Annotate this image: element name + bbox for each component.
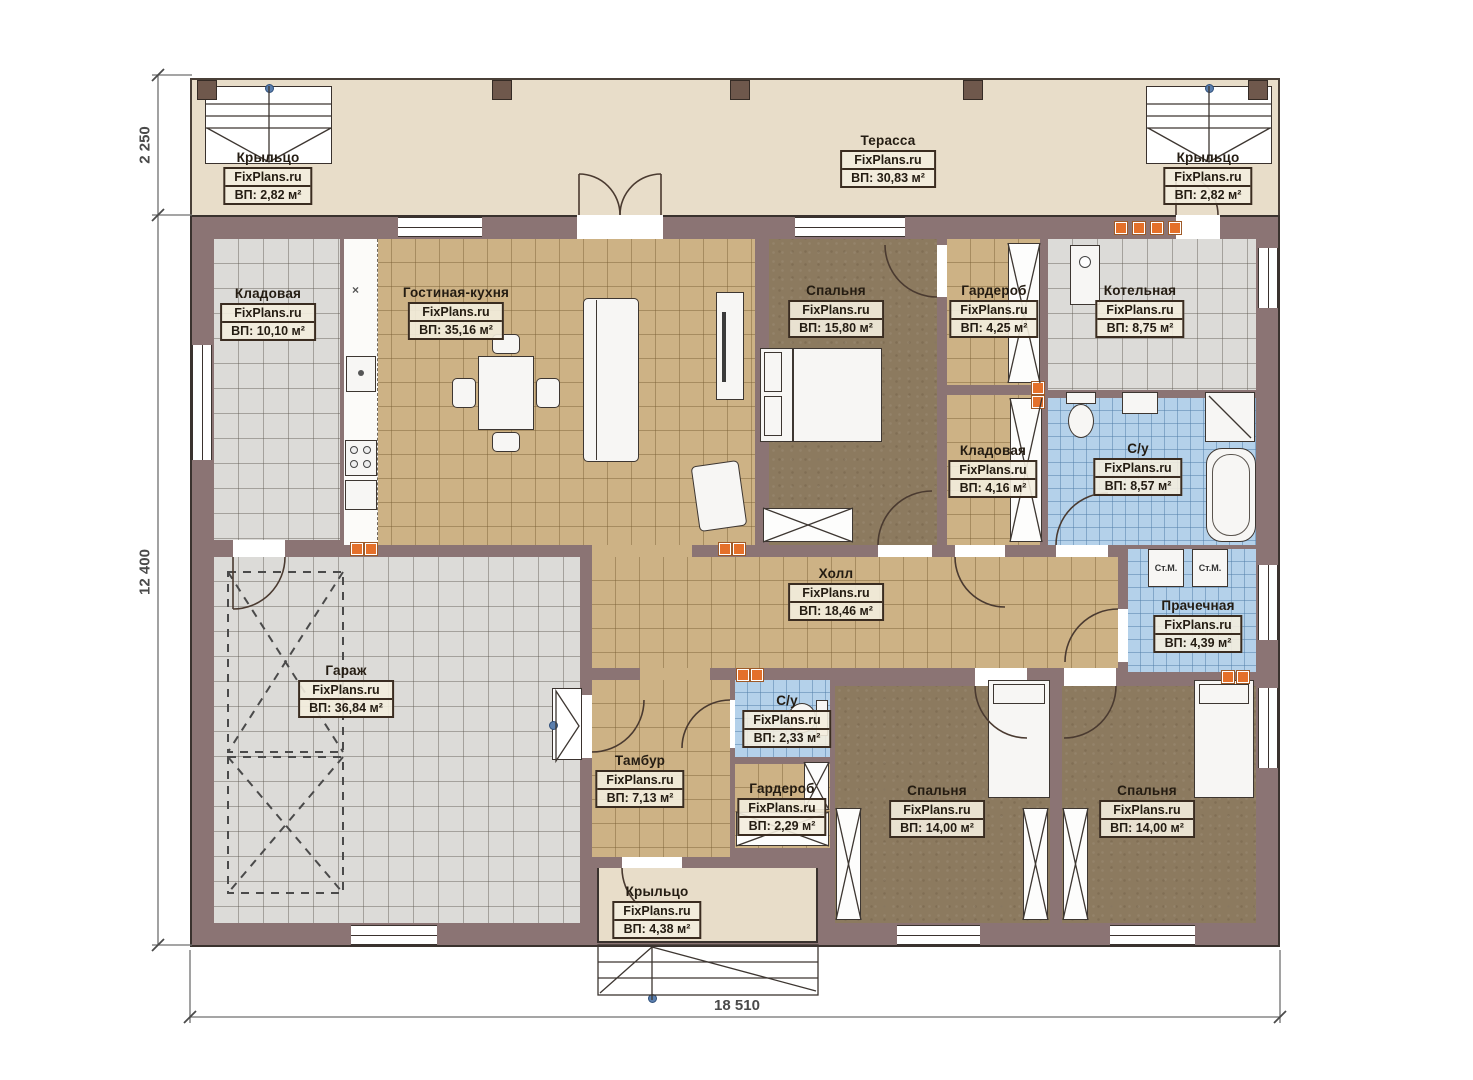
bathroom-sink xyxy=(1122,392,1158,414)
vent-icon xyxy=(737,669,749,681)
vent-icon xyxy=(1169,222,1181,234)
room-label-porch-left: Крыльцо FixPlans.ruВП: 2,82 м² xyxy=(223,150,312,205)
room-label-bedroom-1: Спальня FixPlans.ruВП: 15,80 м² xyxy=(788,283,884,338)
washer-label: Ст.М. xyxy=(1155,563,1178,573)
door-tambour-bathroom-2 xyxy=(730,700,735,748)
opening-hall-tambour xyxy=(640,668,710,680)
vent-icon xyxy=(1115,222,1127,234)
door-bedroom-1-wardrobe xyxy=(937,245,947,297)
terrace-post xyxy=(197,80,217,100)
room-label-bathroom-1: С/у FixPlans.ruВП: 8,57 м² xyxy=(1093,441,1182,496)
garage-gate xyxy=(351,925,437,945)
wardrobe-cabinet xyxy=(1063,808,1088,920)
wardrobe-cabinet xyxy=(763,508,853,542)
burner xyxy=(363,446,371,454)
window xyxy=(1110,925,1195,945)
room-label-wardrobe-2: Гардероб FixPlans.ruВП: 2,29 м² xyxy=(737,781,826,836)
burner xyxy=(350,460,358,468)
room-label-garage: Гараж FixPlans.ruВП: 36,84 м² xyxy=(298,663,394,718)
sink-drain xyxy=(358,370,364,376)
armchair xyxy=(691,460,748,532)
door-hall-bathroom-1 xyxy=(1056,545,1108,557)
window xyxy=(1258,248,1278,308)
vent-icon xyxy=(351,543,363,555)
stair-marker-dot xyxy=(265,84,274,93)
room-label-terrace: Терасса FixPlans.ruВП: 30,83 м² xyxy=(840,133,936,188)
vent-icon xyxy=(733,543,745,555)
room-label-living-kitchen: Гостиная-кухня FixPlans.ruВП: 35,16 м² xyxy=(403,285,509,340)
dimension-house-depth: 12 400 xyxy=(137,549,154,595)
door-hall-storage-2 xyxy=(955,545,1005,557)
room-label-bedroom-2: Спальня FixPlans.ruВП: 14,00 м² xyxy=(889,783,985,838)
pillow xyxy=(764,396,782,436)
vent-icon xyxy=(719,543,731,555)
pillow xyxy=(993,684,1045,704)
vent-icon xyxy=(1151,222,1163,234)
room-label-storage-2: Кладовая FixPlans.ruВП: 4,16 м² xyxy=(948,443,1037,498)
dimension-terrace-depth: 2 250 xyxy=(137,126,154,164)
washing-machine: Ст.М. xyxy=(1192,549,1228,587)
porch-right-door xyxy=(1176,215,1220,239)
door-hinge-dot xyxy=(549,721,558,730)
room-garage-floor xyxy=(214,557,580,923)
wardrobe-cabinet xyxy=(836,808,861,920)
vent-icon xyxy=(1133,222,1145,234)
terrace-post xyxy=(1248,80,1268,100)
opening-living-hall xyxy=(592,545,692,557)
shower xyxy=(1205,392,1255,442)
stove xyxy=(345,440,377,476)
room-label-laundry: Прачечная FixPlans.ruВП: 4,39 м² xyxy=(1153,598,1242,653)
door-bedroom-1-hall xyxy=(878,545,932,557)
window xyxy=(192,345,212,460)
burner xyxy=(350,446,358,454)
dimension-house-width: 18 510 xyxy=(714,997,760,1014)
stair-marker-dot xyxy=(648,994,657,1003)
vent-icon xyxy=(1032,382,1044,394)
front-door xyxy=(622,857,682,868)
room-label-porch-bottom: Крыльцо FixPlans.ruВП: 4,38 м² xyxy=(612,884,701,939)
window xyxy=(897,925,980,945)
vent-icon xyxy=(1222,671,1234,683)
oven xyxy=(345,480,377,510)
toilet-tank xyxy=(1066,392,1096,404)
door-hall-bedroom-3 xyxy=(1064,668,1116,686)
washing-machine: Ст.М. xyxy=(1148,549,1184,587)
washer-label: Ст.М. xyxy=(1199,563,1222,573)
sofa-seat-line xyxy=(596,300,597,460)
chair xyxy=(492,432,520,452)
room-label-bathroom-2: С/у FixPlans.ruВП: 2,33 м² xyxy=(742,693,831,748)
window xyxy=(1258,688,1278,768)
chair xyxy=(452,378,476,408)
tv-console xyxy=(716,292,744,400)
floor-plan: × Ст.М. Ст.М. xyxy=(0,0,1473,1080)
room-label-wardrobe-1: Гардероб FixPlans.ruВП: 4,25 м² xyxy=(949,283,1038,338)
terrace-double-door xyxy=(577,215,663,239)
pillow xyxy=(1199,684,1249,704)
window xyxy=(1258,565,1278,640)
pillow xyxy=(764,352,782,392)
bathtub xyxy=(1206,448,1256,542)
burner xyxy=(363,460,371,468)
room-label-boiler: Котельная FixPlans.ruВП: 8,75 м² xyxy=(1095,283,1184,338)
room-label-tambour: Тамбур FixPlans.ruВП: 7,13 м² xyxy=(595,753,684,808)
wardrobe-cabinet xyxy=(1023,808,1048,920)
door-storage-garage xyxy=(233,540,285,557)
sofa xyxy=(583,298,639,462)
room-storage-1-floor xyxy=(214,239,340,540)
blanket-line xyxy=(792,349,794,441)
terrace-post xyxy=(492,80,512,100)
boiler-dial xyxy=(1079,256,1091,268)
room-label-bedroom-3: Спальня FixPlans.ruВП: 14,00 м² xyxy=(1099,783,1195,838)
toilet-bowl xyxy=(1068,404,1094,438)
chair xyxy=(536,378,560,408)
room-label-porch-right: Крыльцо FixPlans.ruВП: 2,82 м² xyxy=(1163,150,1252,205)
terrace-post xyxy=(963,80,983,100)
tv-screen xyxy=(722,312,726,382)
vent-icon xyxy=(751,669,763,681)
stair-marker-dot xyxy=(1205,84,1214,93)
terrace-post xyxy=(730,80,750,100)
vent-icon xyxy=(365,543,377,555)
kitchen-sink-mark: × xyxy=(352,283,359,297)
window xyxy=(398,217,482,237)
vent-icon xyxy=(1032,396,1044,408)
vent-icon xyxy=(1237,671,1249,683)
window xyxy=(795,217,905,237)
room-label-storage-1: Кладовая FixPlans.ruВП: 10,10 м² xyxy=(220,286,316,341)
room-label-hall: Холл FixPlans.ruВП: 18,46 м² xyxy=(788,566,884,621)
door-hall-laundry xyxy=(1118,609,1128,662)
dining-table xyxy=(478,356,534,430)
